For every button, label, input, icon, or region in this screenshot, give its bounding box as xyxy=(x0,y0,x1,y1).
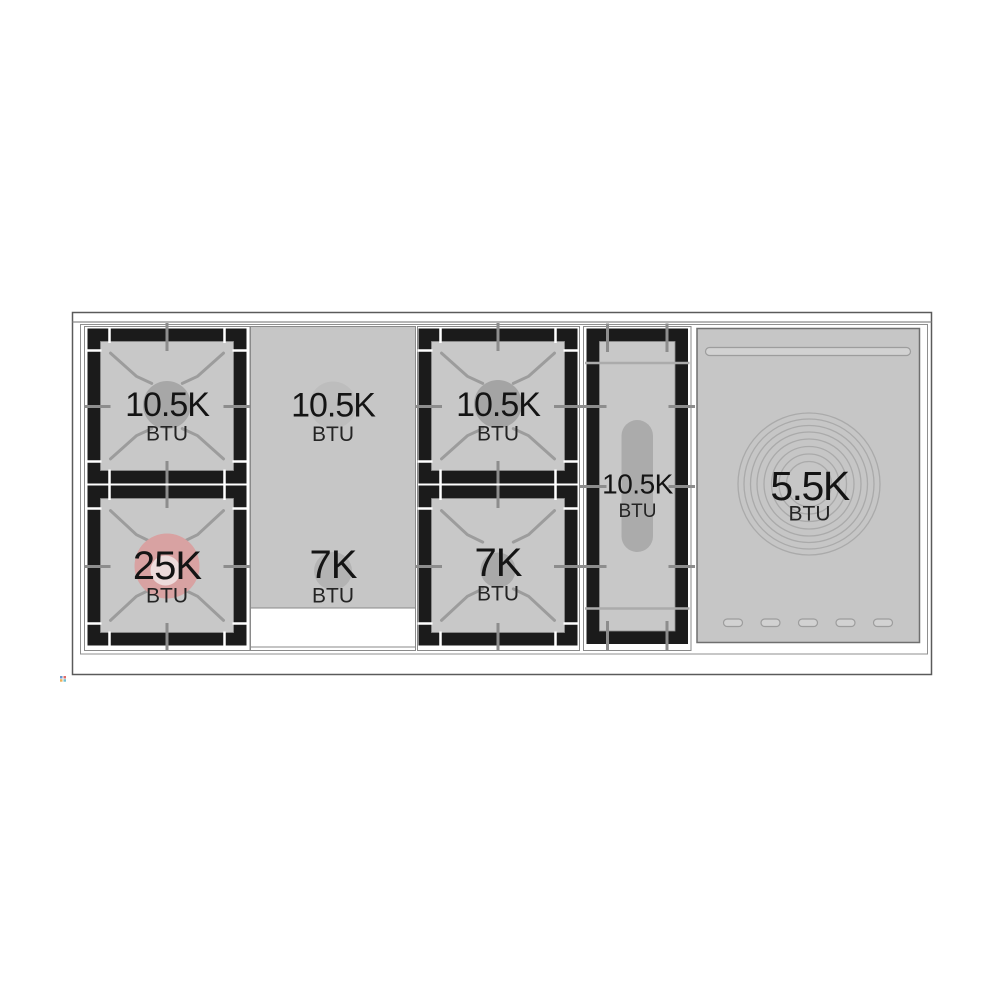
btu-value-label: 10.5K xyxy=(125,386,210,424)
vent-slot xyxy=(799,619,818,627)
rangetop-diagram-svg: 10.5K BTU 25K BTU 10.5K BTU 7K BTU xyxy=(0,0,1000,1000)
griddle-drip-tray xyxy=(251,608,416,647)
vent-slot xyxy=(761,619,780,627)
oval-burner-zone: 10.5K BTU xyxy=(580,324,695,651)
btu-unit-label: BTU xyxy=(477,423,519,446)
burner-zone-center: 10.5K BTU 7K BTU xyxy=(416,323,581,651)
btu-value-label: 7K xyxy=(475,541,523,585)
griddle-zone: 10.5K BTU 7K BTU xyxy=(251,327,416,651)
btu-value-label: 25K xyxy=(133,544,202,588)
btu-value-label: 10.5K xyxy=(602,469,673,500)
simmer-plate-zone: 5.5K BTU xyxy=(697,329,920,643)
btu-unit-label: BTU xyxy=(789,503,831,526)
btu-value-label: 10.5K xyxy=(291,387,376,425)
btu-unit-label: BTU xyxy=(312,585,354,608)
rangetop-burner-diagram: 10.5K BTU 25K BTU 10.5K BTU 7K BTU xyxy=(0,0,1000,1000)
vent-slot xyxy=(874,619,893,627)
btu-unit-label: BTU xyxy=(146,585,188,608)
vent-slot xyxy=(724,619,743,627)
btu-unit-label: BTU xyxy=(312,423,354,446)
burner-zone-left: 10.5K BTU 25K BTU xyxy=(84,323,250,651)
watermark xyxy=(60,676,66,682)
vent-slot xyxy=(836,619,855,627)
btu-value-label: 7K xyxy=(310,543,358,587)
handle-bar xyxy=(706,348,911,356)
btu-unit-label: BTU xyxy=(619,501,657,522)
btu-unit-label: BTU xyxy=(477,583,519,606)
btu-unit-label: BTU xyxy=(146,423,188,446)
btu-value-label: 10.5K xyxy=(456,386,541,424)
